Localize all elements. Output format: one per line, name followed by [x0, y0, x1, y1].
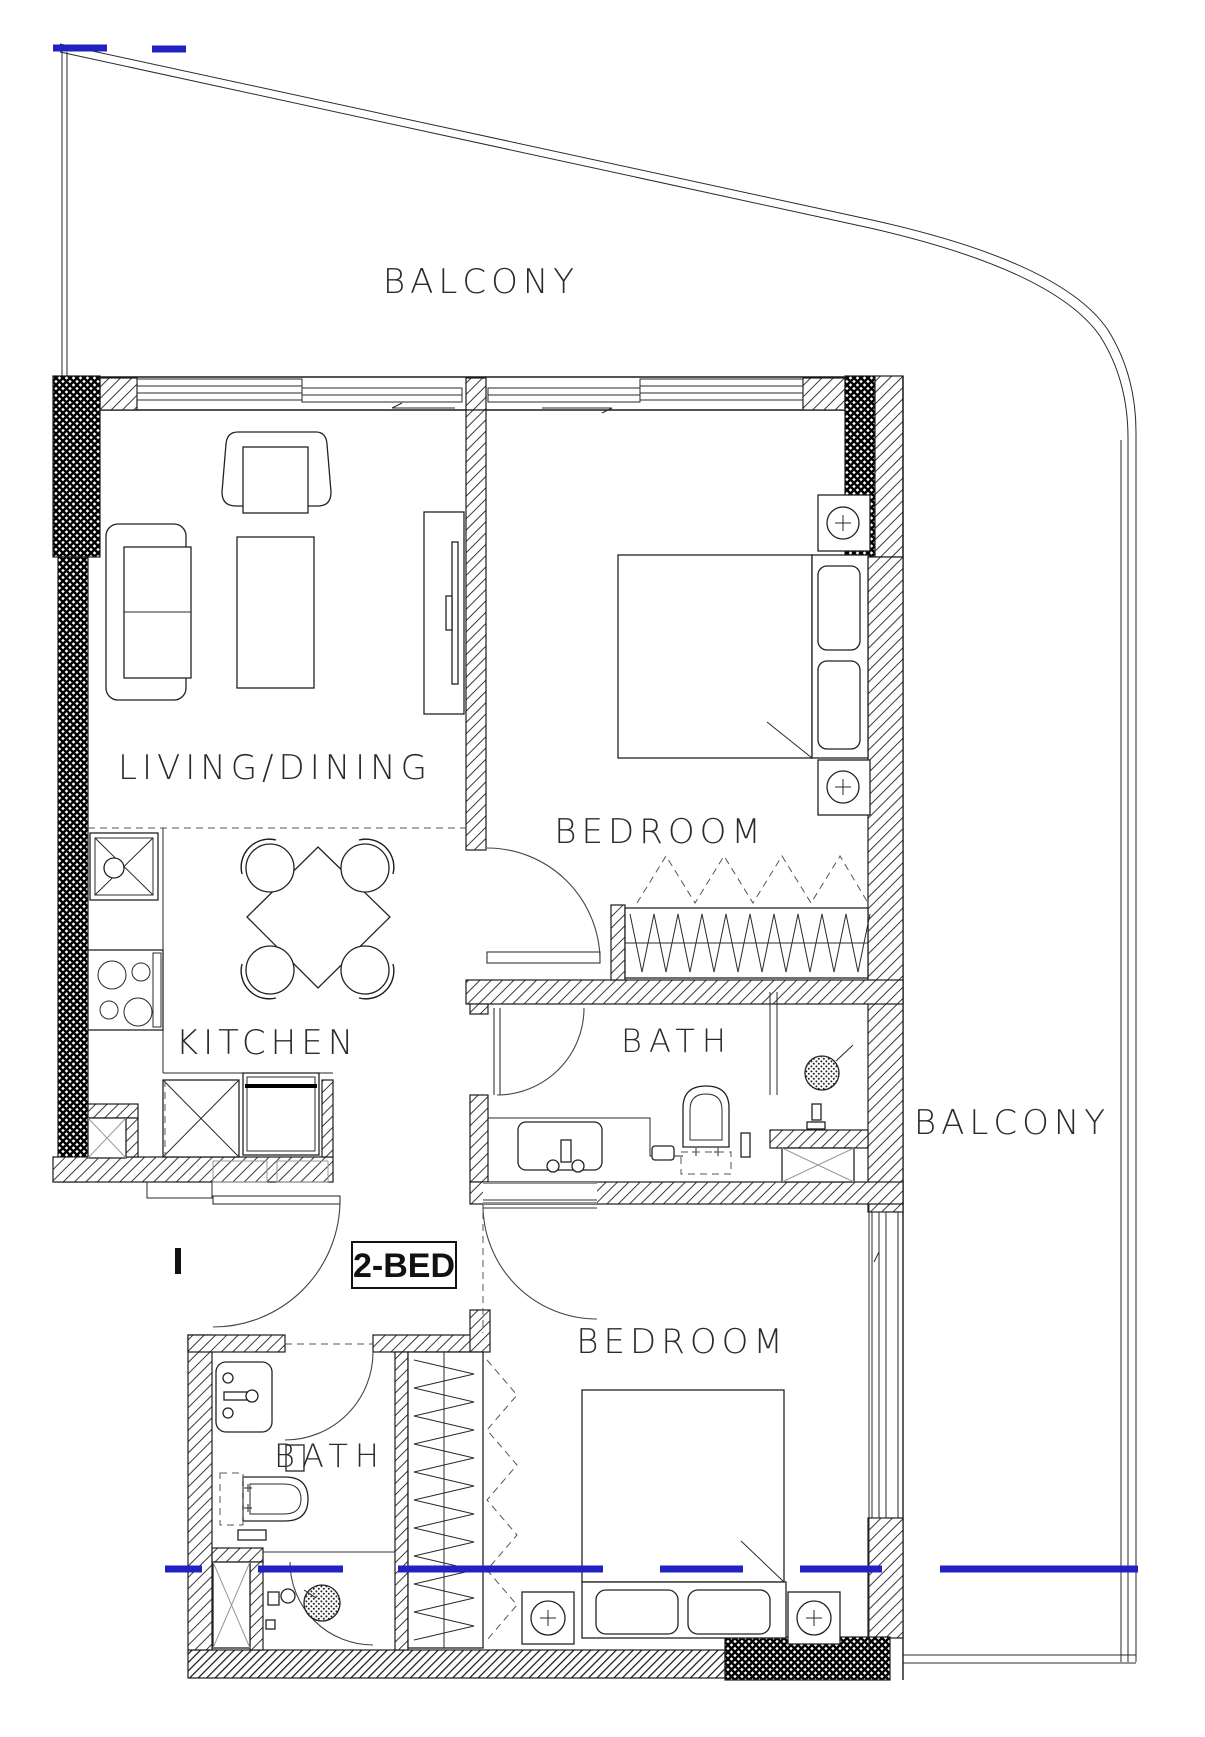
- bedroom2-door: [483, 1200, 597, 1333]
- entry-door: [213, 1196, 340, 1327]
- bed2-pillow-2: [688, 1590, 770, 1634]
- coffee-table: [237, 537, 314, 688]
- unit-label-text: 2-BED: [353, 1247, 455, 1285]
- wall-right-upper: [868, 557, 903, 1212]
- window2-arrow: [874, 1252, 879, 1302]
- shower2-faucet: [268, 1592, 279, 1605]
- bed1-pillow-1: [818, 566, 860, 650]
- nightstand1-bottom: [818, 760, 870, 815]
- corner-block-top-right-hatch: [875, 376, 903, 557]
- wall-wardrobe1-stub: [611, 905, 625, 980]
- wall-bath1-left-top: [470, 1004, 488, 1014]
- dishwasher: [163, 1080, 239, 1157]
- wall-bath2-top-right: [373, 1335, 483, 1352]
- shower1-head: [805, 1056, 839, 1090]
- bed1-pillow-2: [818, 661, 860, 749]
- bath2-door: [285, 1344, 373, 1440]
- armchair-seat: [243, 447, 308, 513]
- unit-label: 2-BED: [352, 1242, 456, 1288]
- nightstand2-left: [522, 1592, 574, 1644]
- bath2-flush-plate: [238, 1530, 266, 1540]
- label-bath-2: BATH: [274, 1437, 386, 1475]
- sliding-arrow-left: [392, 403, 455, 408]
- bath1-fixtures: [488, 992, 854, 1182]
- nightstand1-top: [818, 495, 870, 551]
- bath2-vanity: [216, 1362, 272, 1432]
- living-room-furniture: [106, 432, 464, 714]
- bath1-brush: [741, 1133, 750, 1157]
- wall-bedroom1-bottom: [466, 980, 903, 1004]
- bedroom1-door: [487, 848, 600, 963]
- nightstand2-right: [788, 1592, 840, 1644]
- wall-fridge-stub: [322, 1080, 333, 1157]
- bath2-shower: [213, 1562, 340, 1648]
- wall-shower1-band: [770, 1130, 868, 1148]
- wall-bath1-left: [470, 1095, 488, 1182]
- bath1-vanity: [518, 1122, 602, 1172]
- bath1-soap-dish: [652, 1146, 674, 1160]
- wall-bath2-left: [188, 1335, 212, 1650]
- bath2-cistern-dashed: [220, 1473, 243, 1525]
- bedroom1-window: [488, 379, 803, 413]
- stove: [88, 950, 163, 1030]
- dining-set: [241, 839, 394, 999]
- wall-kitchen-niche-v: [125, 1118, 138, 1157]
- wall-top-hatch-2: [803, 378, 845, 410]
- entry-threshold: [147, 1182, 212, 1198]
- fridge: [243, 1073, 319, 1155]
- bath1-cistern-dashed: [681, 1152, 731, 1174]
- tv-screen: [452, 542, 458, 684]
- bedroom1-furniture: [618, 495, 870, 978]
- corner-block-top-left: [53, 376, 100, 557]
- label-balcony-top: BALCONY: [383, 262, 579, 302]
- shower1-faucet: [812, 1104, 821, 1120]
- bed1-mattress: [618, 555, 812, 758]
- wardrobe2-doors-dashed: [487, 1360, 517, 1640]
- wall-tick-mark: [175, 1248, 181, 1274]
- wall-bottom: [188, 1650, 725, 1678]
- wardrobe2: [408, 1352, 517, 1648]
- wall-hall-stub: [470, 1310, 490, 1352]
- label-bedroom-1: BEDROOM: [554, 812, 765, 852]
- living-window: [137, 379, 462, 408]
- bedroom2-furniture: [522, 1204, 898, 1650]
- wall-shower2-v: [250, 1562, 263, 1650]
- wall-right-lower: [868, 1518, 903, 1638]
- label-kitchen: KITCHEN: [176, 1023, 358, 1063]
- wall-bath2-right: [395, 1352, 408, 1650]
- bath1-toilet: [652, 1086, 750, 1174]
- wall-kitchen-niche-h: [88, 1104, 138, 1118]
- wall-shower2-h: [212, 1548, 263, 1562]
- washing-machine: [88, 1118, 126, 1158]
- kitchen-sink: [90, 833, 158, 900]
- wall-bath2-top-left: [188, 1335, 285, 1352]
- floor-plan-drawing: BALCONY LIVING/DINING BEDROOM KITCHEN BA…: [0, 0, 1205, 1737]
- label-bath-1: BATH: [621, 1022, 733, 1060]
- bed2-pillow-1: [596, 1590, 678, 1634]
- wall-living-bedroom1: [466, 410, 486, 850]
- label-balcony-right: BALCONY: [914, 1103, 1110, 1143]
- label-bedroom-2: BEDROOM: [576, 1322, 787, 1362]
- bath1-shower: [770, 992, 854, 1182]
- bedroom2-door-opening: [483, 1182, 597, 1204]
- bedroom2-window: [872, 1212, 898, 1518]
- wardrobe1: [625, 856, 870, 978]
- wall-top-hatch-divider: [466, 378, 486, 410]
- bath1-door: [494, 1008, 584, 1095]
- wardrobe1-doors-dashed: [637, 856, 868, 903]
- wall-top-hatch-1: [100, 378, 137, 410]
- label-living-dining: LIVING/DINING: [118, 748, 432, 788]
- wall-left: [58, 557, 88, 1182]
- floor-plan-canvas: BALCONY LIVING/DINING BEDROOM KITCHEN BA…: [0, 0, 1205, 1737]
- shower2-head: [304, 1585, 340, 1621]
- tv-bracket: [446, 596, 452, 630]
